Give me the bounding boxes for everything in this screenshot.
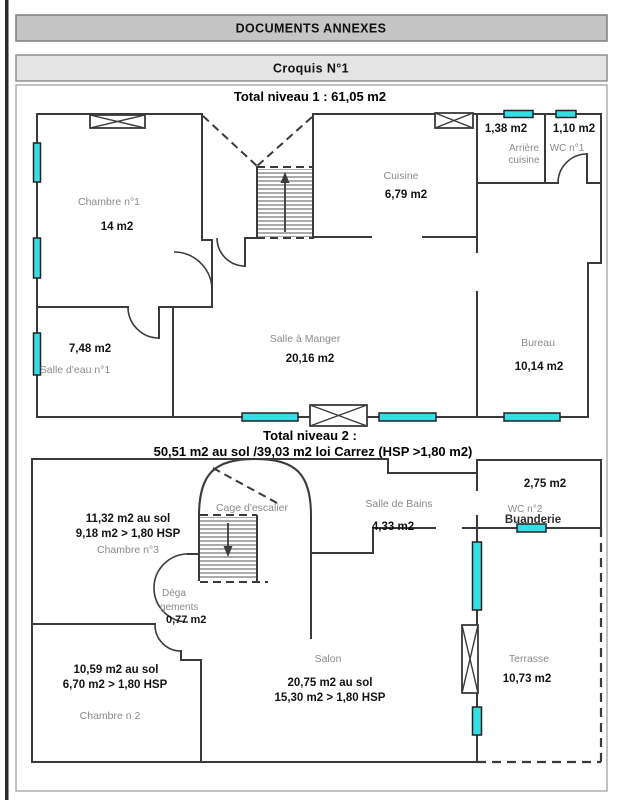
terrasse-area: 10,73 m2 [503, 673, 552, 685]
salle-de-bains-area: 4,33 m2 [372, 521, 414, 533]
page-edge-line [5, 0, 9, 800]
level2-plan: 11,32 m2 au sol 9,18 m2 > 1,80 HSP Chamb… [32, 459, 601, 762]
buanderie-label: Buanderie [505, 514, 561, 526]
arriere-cuisine-label-2: cuisine [508, 155, 540, 166]
l1-door-arc-chambre1 [174, 252, 212, 290]
l2-top-wall [32, 459, 477, 473]
salle-a-manger-label: Salle à Manger [270, 333, 341, 345]
l2-bains-wall-step [311, 528, 373, 553]
salon-area-sol: 20,75 m2 au sol [287, 677, 372, 689]
terrasse-label: Terrasse [509, 653, 549, 665]
l1-door-arc-wc1 [558, 154, 587, 183]
chambre2-area-hsp: 6,70 m2 > 1,80 HSP [63, 679, 168, 691]
l2-stair-dash-diag [213, 468, 277, 503]
cuisine-area: 6,79 m2 [385, 189, 427, 201]
chambre1-label: Chambre n°1 [78, 196, 140, 208]
croquis-title: Croquis N°1 [273, 62, 349, 76]
level2-title-line2: 50,51 m2 au sol /39,03 m2 loi Carrez (HS… [154, 444, 473, 459]
l1-window-left-1 [34, 143, 41, 182]
cage-escalier-label: Cage d'escalier [216, 502, 289, 514]
chambre3-area-sol: 11,32 m2 au sol [86, 513, 170, 525]
wc1-label: WC n°1 [550, 143, 585, 154]
documents-annexes-title: DOCUMENTS ANNEXES [236, 22, 387, 36]
degagements-label-1: Déga [162, 588, 186, 599]
salle-eau-area: 7,48 m2 [69, 343, 111, 355]
l1-window-left-2 [34, 238, 41, 278]
salon-area-hsp: 15,30 m2 > 1,80 HSP [275, 692, 386, 704]
l1-window-bottom-1 [242, 413, 298, 421]
arriere-cuisine-label-1: Arrière [509, 143, 539, 154]
l2-window-salon-2 [473, 707, 482, 735]
salle-a-manger-area: 20,16 m2 [286, 353, 335, 365]
l1-window-arriere [504, 111, 533, 118]
degagements-label-2: gements [160, 602, 198, 613]
cuisine-label: Cuisine [383, 170, 418, 182]
arriere-cuisine-area: 1,38 m2 [485, 123, 527, 135]
l1-door-arc-salle-eau [128, 307, 159, 338]
wc1-area: 1,10 m2 [553, 123, 595, 135]
croquis-document: DOCUMENTS ANNEXES Croquis N°1 Total nive… [0, 0, 621, 800]
floorplan-svg: DOCUMENTS ANNEXES Croquis N°1 Total nive… [0, 0, 621, 800]
wc2-area: 2,75 m2 [524, 478, 566, 490]
l1-window-bottom-2 [379, 413, 436, 421]
l2-window-salon-1 [473, 542, 482, 610]
level1-title: Total niveau 1 : 61,05 m2 [234, 89, 386, 104]
l1-stair-dash-diag-right [257, 117, 312, 166]
l1-xwindow-bottom [310, 405, 367, 426]
level1-plan: Chambre n°1 14 m2 Cuisine 6,79 m2 1,38 m… [34, 111, 602, 427]
l1-door-arc-sejour [217, 238, 245, 266]
bureau-label: Bureau [521, 337, 555, 349]
chambre3-label: Chambre n°3 [97, 544, 159, 556]
l2-xwindow-salon [462, 625, 478, 693]
chambre1-area: 14 m2 [101, 221, 134, 233]
l1-xwindow-chambre1 [90, 115, 145, 128]
l1-window-bottom-3 [504, 413, 560, 421]
l1-right-wall [588, 114, 601, 417]
chambre3-area-hsp: 9,18 m2 > 1,80 HSP [76, 528, 181, 540]
bureau-area: 10,14 m2 [515, 361, 564, 373]
l1-window-wc1 [556, 111, 576, 118]
chambre2-label: Chambre n 2 [80, 710, 141, 722]
salle-de-bains-label: Salle de Bains [365, 498, 432, 510]
l1-stair-dash-diag-left [203, 116, 257, 166]
chambre2-area-sol: 10,59 m2 au sol [73, 664, 158, 676]
l2-salon-left-wall [181, 651, 201, 762]
l1-xwindow-cuisine [435, 113, 473, 128]
degagements-area: 0,77 m2 [166, 614, 206, 626]
salon-label: Salon [315, 653, 342, 665]
level2-title-line1: Total niveau 2 : [263, 428, 357, 443]
salle-eau-label: Salle d'eau n°1 [40, 364, 111, 376]
l2-door-arc-chambre2 [155, 625, 181, 651]
